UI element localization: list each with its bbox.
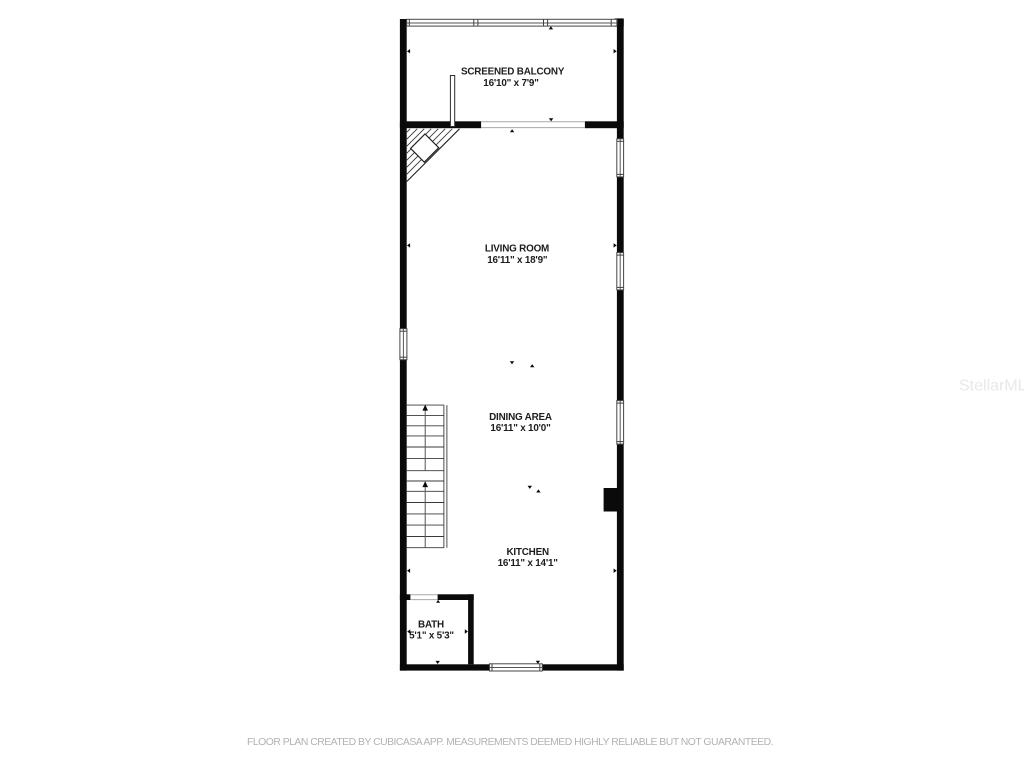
svg-text:FLOOR PLAN CREATED BY CUBICASA: FLOOR PLAN CREATED BY CUBICASA APP. MEAS… — [247, 737, 773, 748]
svg-text:SCREENED BALCONY: SCREENED BALCONY — [461, 67, 565, 78]
svg-text:16'11" x 14'1": 16'11" x 14'1" — [498, 558, 559, 569]
svg-text:KITCHEN: KITCHEN — [506, 547, 549, 558]
svg-text:16'11" x 18'9": 16'11" x 18'9" — [487, 255, 548, 266]
svg-text:16'11" x 10'0": 16'11" x 10'0" — [490, 423, 551, 434]
svg-text:5'1" x 5'3": 5'1" x 5'3" — [409, 630, 454, 641]
svg-text:StellarMLS: StellarMLS — [959, 378, 1024, 395]
svg-text:LIVING ROOM: LIVING ROOM — [485, 244, 549, 255]
svg-text:16'10" x 7'9": 16'10" x 7'9" — [483, 78, 539, 89]
svg-text:DINING AREA: DINING AREA — [489, 412, 552, 423]
svg-text:BATH: BATH — [418, 620, 444, 631]
